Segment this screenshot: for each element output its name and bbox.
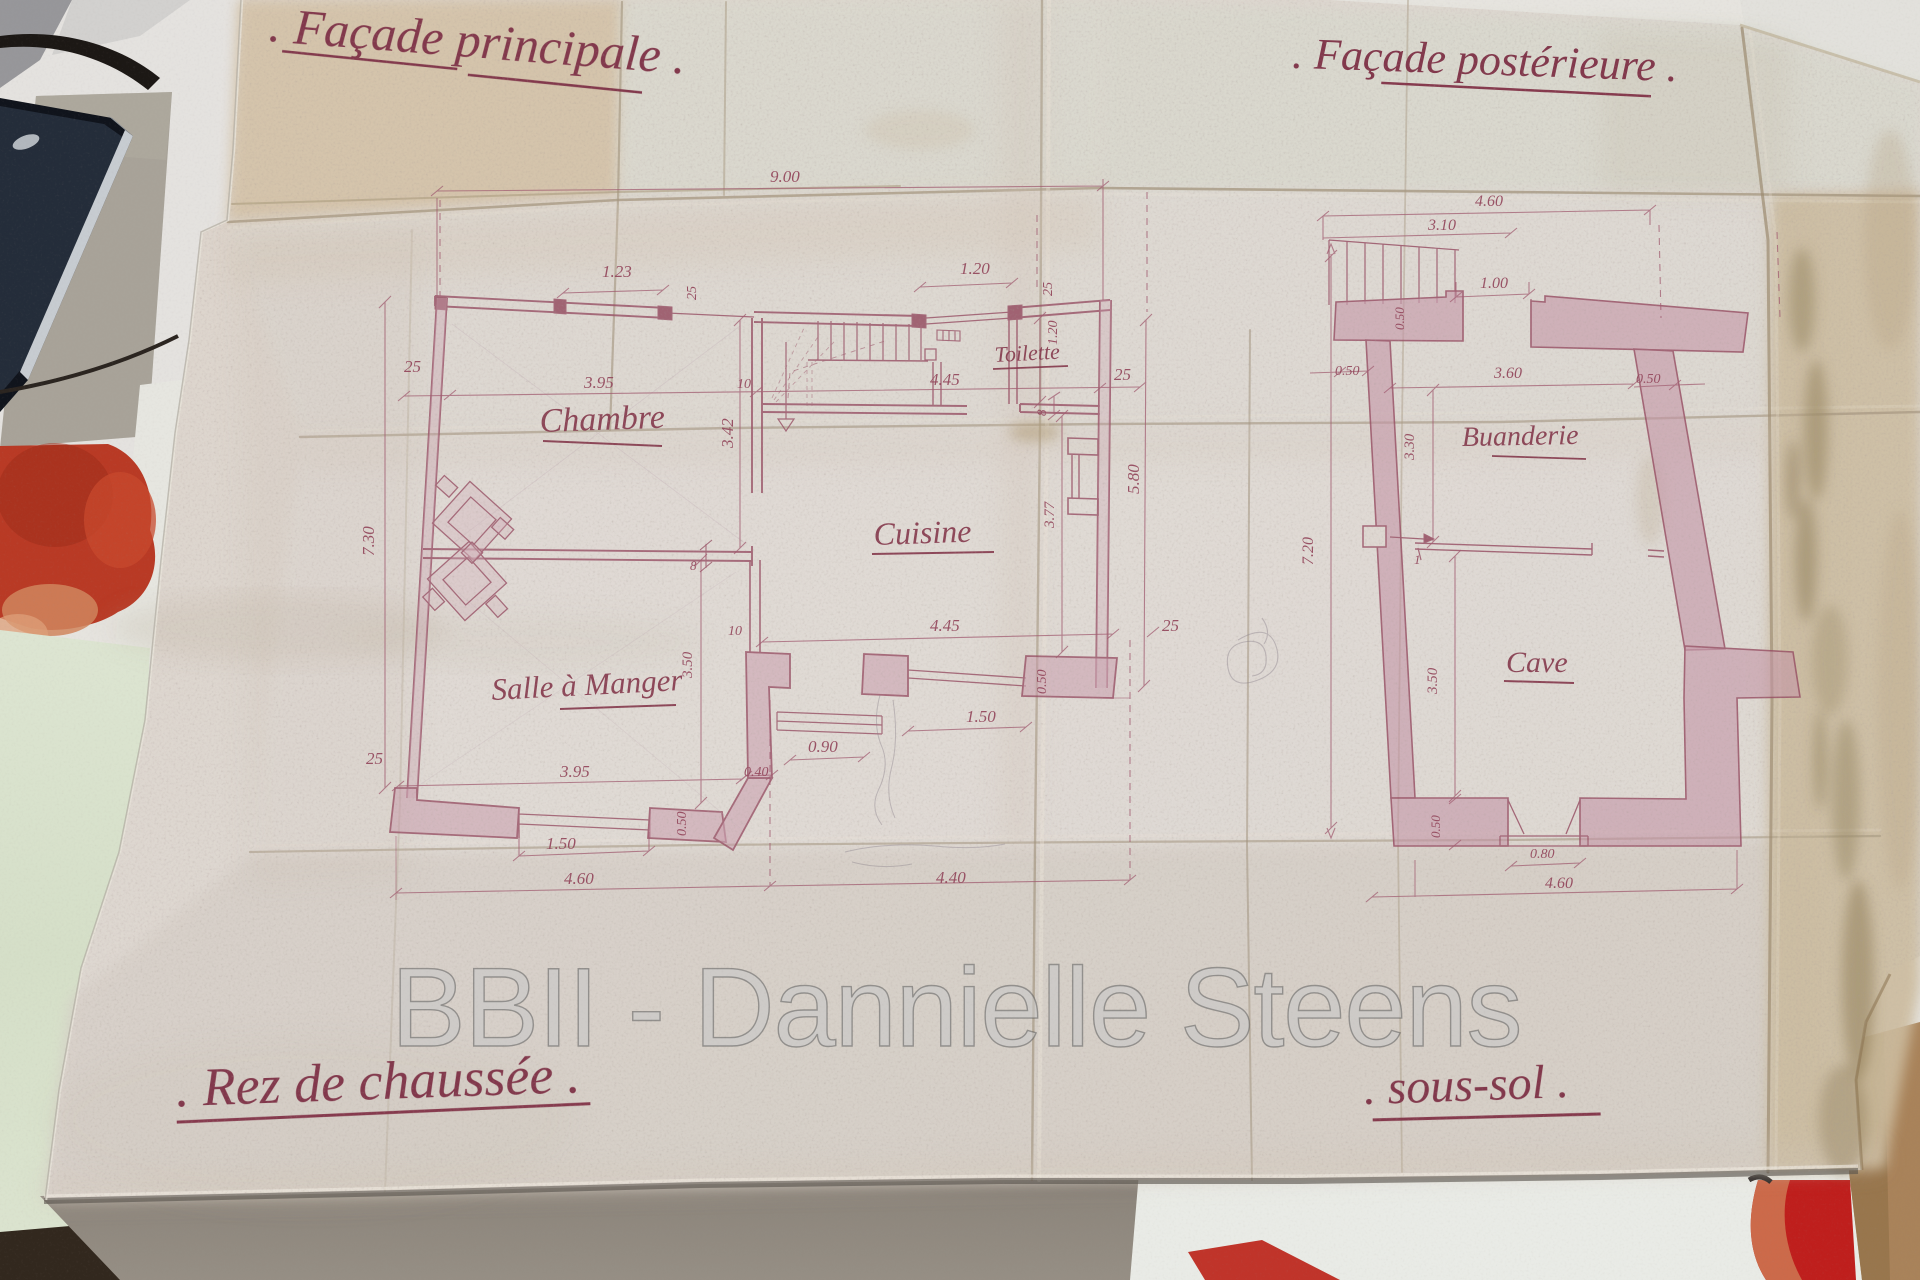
svg-text:BBII - Dannielle Steens: BBII - Dannielle Steens	[391, 945, 1521, 1070]
